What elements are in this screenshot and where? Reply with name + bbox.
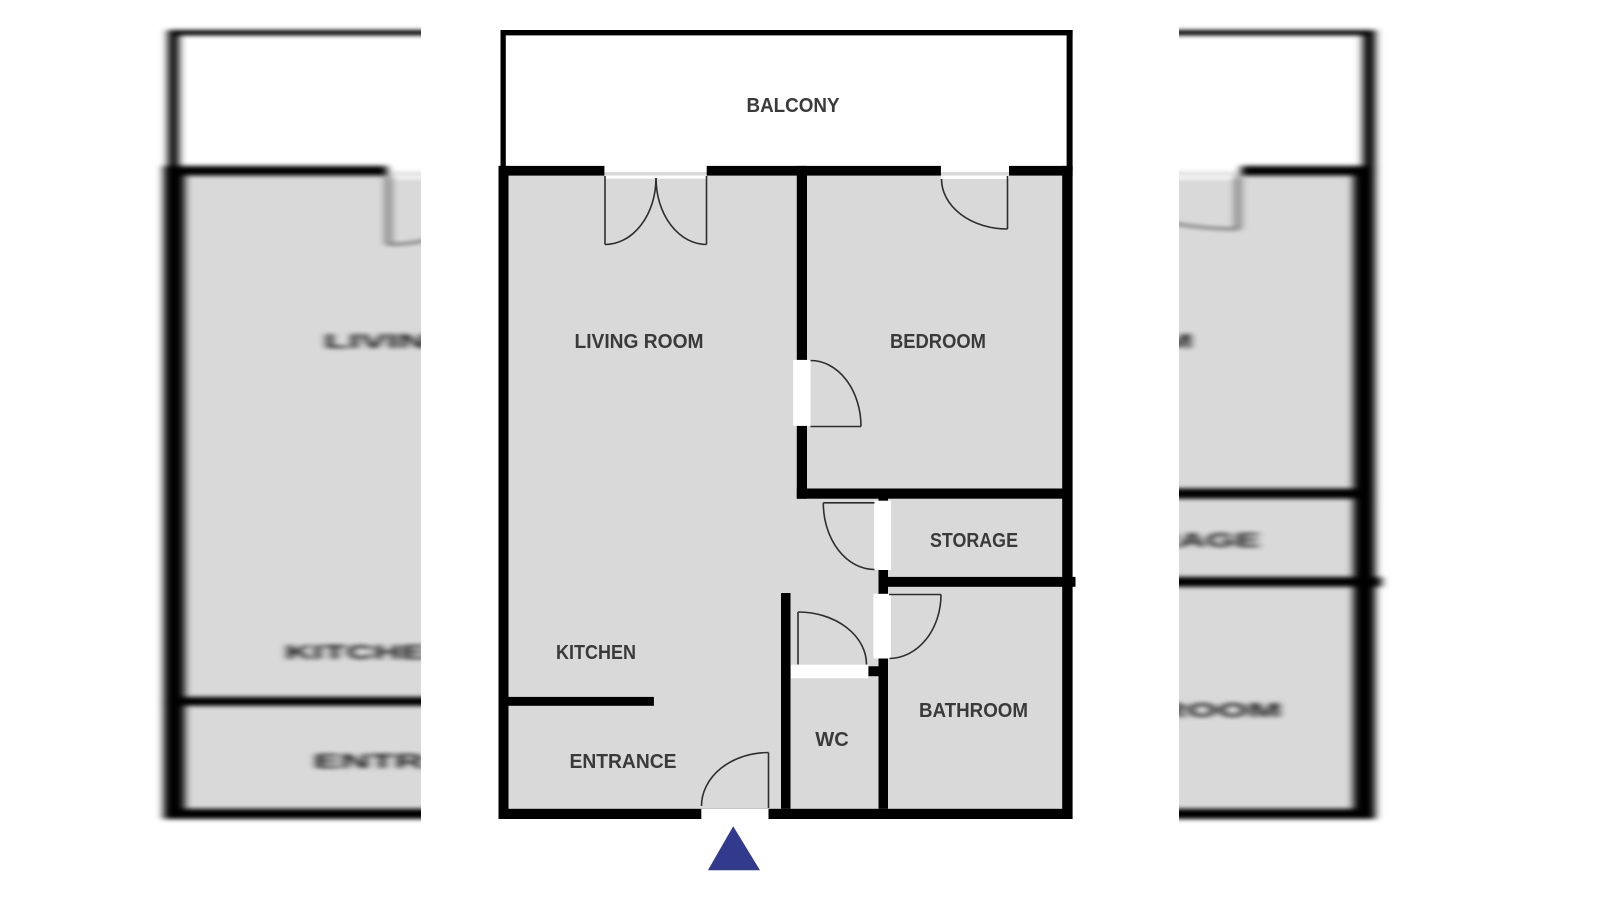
svg-text:ENTRANCE: ENTRANCE [570,751,677,773]
svg-text:WC: WC [815,729,849,751]
svg-text:LIVING ROOM: LIVING ROOM [575,331,704,353]
svg-text:BATHROOM: BATHROOM [919,700,1028,722]
svg-text:KITCHEN: KITCHEN [556,642,636,664]
svg-text:BEDROOM: BEDROOM [890,331,986,353]
svg-text:STORAGE: STORAGE [930,530,1018,552]
svg-text:BALCONY: BALCONY [747,95,841,117]
